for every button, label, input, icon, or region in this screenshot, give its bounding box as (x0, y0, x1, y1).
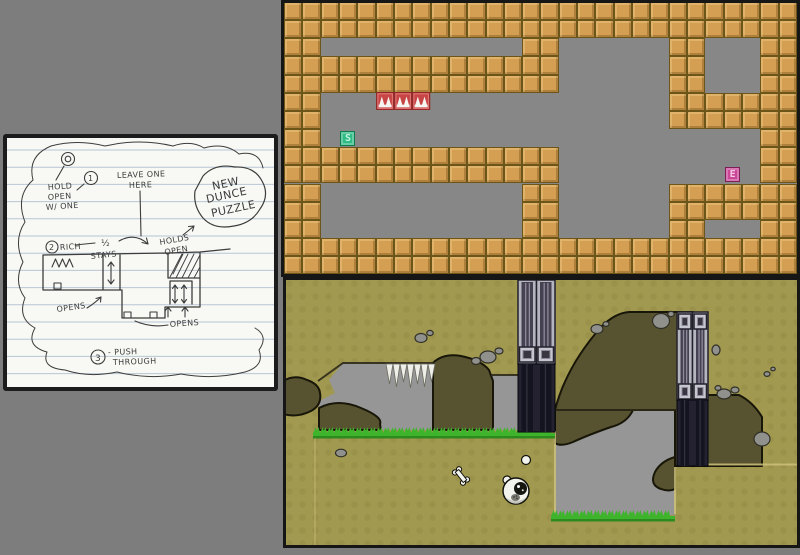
wall-tile (357, 147, 375, 165)
sketch-drawing: HOLDOPENW/ ONELEAVE ONEHERENEWDUNCEPUZZL… (7, 138, 274, 387)
wall-tile (559, 256, 577, 274)
wall-tile (669, 20, 687, 38)
wall-tile (431, 165, 449, 183)
wall-tile (522, 38, 540, 56)
rock (715, 386, 721, 391)
wall-tile (779, 129, 797, 147)
wall-tile (339, 165, 357, 183)
pencil-stroke (56, 166, 64, 180)
wall-tile (632, 256, 650, 274)
wall-tile (394, 256, 412, 274)
wall-tile (669, 2, 687, 20)
wall-tile (705, 202, 723, 220)
wall-tile (705, 20, 723, 38)
wall-tile (540, 165, 558, 183)
wall-tile (486, 165, 504, 183)
terrain-shape (283, 377, 320, 415)
tile-level-viewport[interactable]: SE (281, 0, 800, 277)
pencil-stroke (87, 297, 101, 308)
wall-tile (522, 2, 540, 20)
wall-tile (742, 202, 760, 220)
wall-tile (376, 147, 394, 165)
ball (522, 456, 531, 465)
rock (495, 348, 503, 354)
wall-tile (779, 111, 797, 129)
pencil-stroke (54, 283, 157, 318)
wall-tile (779, 147, 797, 165)
wall-tile (540, 184, 558, 202)
wall-tile (779, 202, 797, 220)
wall-tile (449, 256, 467, 274)
wall-tile (522, 184, 540, 202)
wall-tile (705, 111, 723, 129)
wall-tile (486, 75, 504, 93)
rock (764, 372, 770, 377)
wall-tile (742, 93, 760, 111)
wall-tile (724, 2, 742, 20)
sketch-label: OPEN (164, 244, 189, 257)
wall-tile (779, 93, 797, 111)
wall-tile (522, 238, 540, 256)
wall-tile (284, 220, 302, 238)
wall-tile (687, 20, 705, 38)
wall-tile (467, 20, 485, 38)
wall-tile (412, 56, 430, 74)
wall-tile (779, 56, 797, 74)
wall-tile (522, 56, 540, 74)
wall-tile (724, 20, 742, 38)
pencil-stroke (108, 262, 114, 284)
rock (480, 351, 496, 363)
rock (668, 311, 674, 316)
wall-tile (321, 147, 339, 165)
wall-tile (431, 56, 449, 74)
wall-tile (779, 256, 797, 274)
wall-tile (687, 38, 705, 56)
wall-tile (540, 56, 558, 74)
wall-tile (302, 202, 320, 220)
wall-tile (394, 147, 412, 165)
wall-tile (302, 238, 320, 256)
wall-tile (669, 111, 687, 129)
platformer-level-viewport[interactable] (283, 277, 800, 548)
wall-tile (540, 238, 558, 256)
wall-tile (321, 2, 339, 20)
wall-tile (302, 256, 320, 274)
wall-tile (302, 2, 320, 20)
spike-block (412, 92, 430, 110)
rock (603, 322, 609, 327)
wall-tile (540, 20, 558, 38)
start-marker: S (340, 131, 355, 146)
wall-tile (724, 202, 742, 220)
wall-tile (724, 184, 742, 202)
wall-tile (705, 184, 723, 202)
wall-tile (779, 220, 797, 238)
design-sketch-panel: HOLDOPENW/ ONELEAVE ONEHERENEWDUNCEPUZZL… (3, 134, 278, 391)
sketch-label: OPENS (56, 301, 86, 314)
rock (653, 314, 670, 329)
wall-tile (394, 75, 412, 93)
wall-tile (595, 238, 613, 256)
wall-tile (760, 165, 778, 183)
wall-tile (339, 75, 357, 93)
metal-pillar (518, 280, 555, 432)
wall-tile (779, 184, 797, 202)
spike-block (394, 92, 412, 110)
wall-tile (467, 2, 485, 20)
wall-tile (284, 2, 302, 20)
wall-tile (357, 165, 375, 183)
wall-tile (376, 2, 394, 20)
wall-tile (339, 56, 357, 74)
wall-tile (522, 147, 540, 165)
wall-tile (321, 56, 339, 74)
wall-tile (504, 2, 522, 20)
sketch-label: OPEN (48, 191, 72, 202)
wall-tile (669, 56, 687, 74)
wall-tile (760, 111, 778, 129)
wall-tile (779, 38, 797, 56)
sketch-label: RICH (60, 242, 82, 252)
wall-tile (760, 38, 778, 56)
wall-tile (522, 75, 540, 93)
wall-tile (779, 238, 797, 256)
wall-tile (412, 147, 430, 165)
wall-tile (669, 238, 687, 256)
design-workspace: HOLDOPENW/ ONELEAVE ONEHERENEWDUNCEPUZZL… (0, 0, 800, 555)
wall-tile (760, 56, 778, 74)
wall-tile (559, 2, 577, 20)
rock (427, 330, 433, 335)
wall-tile (705, 238, 723, 256)
wall-tile (376, 56, 394, 74)
wall-tile (540, 256, 558, 274)
wall-tile (760, 220, 778, 238)
metal-pillar (677, 312, 708, 466)
pencil-stroke (170, 254, 200, 278)
wall-tile (504, 75, 522, 93)
wall-tile (669, 202, 687, 220)
wall-tile (302, 56, 320, 74)
wall-tile (302, 220, 320, 238)
pencil-stroke (204, 146, 263, 168)
pencil-stroke (140, 191, 141, 236)
wall-tile (431, 75, 449, 93)
wall-tile (742, 20, 760, 38)
wall-tile (412, 238, 430, 256)
sketch-label: ½ (101, 239, 110, 249)
wall-tile (760, 20, 778, 38)
rock (591, 325, 603, 334)
sketch-label: STAYS (90, 249, 117, 261)
wall-tile (449, 75, 467, 93)
wall-tile (339, 2, 357, 20)
pencil-circle (65, 156, 71, 162)
wall-tile (760, 2, 778, 20)
rock (472, 358, 481, 365)
wall-tile (302, 147, 320, 165)
wall-tile (357, 256, 375, 274)
wall-tile (284, 129, 302, 147)
wall-tile (724, 256, 742, 274)
wall-tile (321, 165, 339, 183)
wall-tile (760, 184, 778, 202)
rock (731, 387, 739, 393)
wall-tile (284, 165, 302, 183)
wall-tile (577, 256, 595, 274)
wall-tile (412, 75, 430, 93)
wall-tile (669, 220, 687, 238)
wall-tile (614, 2, 632, 20)
wall-tile (522, 202, 540, 220)
bone-icon (451, 466, 470, 487)
wall-tile (559, 238, 577, 256)
wall-tile (376, 238, 394, 256)
wall-tile (284, 38, 302, 56)
wall-tile (467, 147, 485, 165)
wall-tile (467, 56, 485, 74)
wall-tile (394, 165, 412, 183)
wall-tile (577, 238, 595, 256)
wall-tile (540, 38, 558, 56)
wall-tile (614, 256, 632, 274)
wall-tile (302, 20, 320, 38)
wall-tile (559, 20, 577, 38)
wall-tile (614, 238, 632, 256)
wall-tile (449, 20, 467, 38)
wall-tile (321, 256, 339, 274)
wall-tile (650, 256, 668, 274)
wall-tile (412, 256, 430, 274)
wall-tile (376, 20, 394, 38)
wall-tile (632, 20, 650, 38)
wall-tile (760, 256, 778, 274)
wall-tile (540, 2, 558, 20)
wall-tile (760, 129, 778, 147)
wall-tile (669, 75, 687, 93)
wall-tile (760, 75, 778, 93)
wall-tile (687, 238, 705, 256)
wall-tile (431, 20, 449, 38)
wall-tile (376, 165, 394, 183)
wall-tile (284, 238, 302, 256)
wall-tile (595, 256, 613, 274)
pencil-circle (62, 153, 75, 166)
wall-tile (486, 147, 504, 165)
wall-tile (687, 56, 705, 74)
wall-tile (779, 165, 797, 183)
wall-tile (760, 238, 778, 256)
wall-tile (779, 2, 797, 20)
wall-tile (504, 256, 522, 274)
rock (712, 345, 720, 355)
wall-tile (302, 75, 320, 93)
wall-tile (486, 20, 504, 38)
wall-tile (486, 2, 504, 20)
wall-tile (431, 256, 449, 274)
wall-tile (284, 184, 302, 202)
wall-tile (669, 184, 687, 202)
wall-tile (669, 38, 687, 56)
wall-tile (284, 202, 302, 220)
wall-tile (302, 111, 320, 129)
sketch-label: HERE (129, 180, 153, 190)
wall-tile (412, 165, 430, 183)
wall-tile (412, 20, 430, 38)
wall-tile (504, 20, 522, 38)
sketch-label: - PUSH (108, 347, 138, 357)
rock (336, 449, 347, 457)
wall-tile (669, 93, 687, 111)
wall-tile (742, 2, 760, 20)
wall-tile (540, 147, 558, 165)
wall-tile (742, 256, 760, 274)
wall-tile (302, 38, 320, 56)
terrain-shape (433, 355, 493, 430)
wall-tile (321, 75, 339, 93)
wall-tile (705, 93, 723, 111)
wall-tile (339, 256, 357, 274)
wall-tile (687, 184, 705, 202)
wall-tile (284, 93, 302, 111)
wall-tile (760, 202, 778, 220)
sketch-label: THROUGH (112, 356, 157, 367)
wall-tile (486, 256, 504, 274)
wall-tile (357, 2, 375, 20)
wall-tile (504, 56, 522, 74)
wall-tile (687, 256, 705, 274)
pencil-stroke (51, 142, 204, 148)
wall-tile (687, 2, 705, 20)
rock (771, 367, 775, 371)
wall-tile (742, 238, 760, 256)
wall-tile (687, 220, 705, 238)
wall-tile (669, 256, 687, 274)
wall-tile (540, 75, 558, 93)
pencil-stroke (165, 307, 188, 317)
player-character (503, 476, 529, 504)
sketch-canvas: HOLDOPENW/ ONELEAVE ONEHERENEWDUNCEPUZZL… (7, 138, 274, 387)
wall-tile (687, 111, 705, 129)
wall-tile (522, 20, 540, 38)
wall-tile (577, 2, 595, 20)
wall-tile (522, 165, 540, 183)
sketch-label: HOLD (48, 181, 73, 192)
wall-tile (779, 75, 797, 93)
spike-block (376, 92, 394, 110)
platformer-layer (283, 277, 800, 548)
exit-marker: E (725, 167, 740, 182)
wall-tile (742, 184, 760, 202)
wall-tile (650, 238, 668, 256)
sketch-label: 1 (88, 174, 94, 183)
wall-tile (394, 2, 412, 20)
rock (754, 432, 770, 446)
wall-tile (705, 256, 723, 274)
pencil-stroke (119, 237, 148, 244)
wall-tile (742, 111, 760, 129)
wall-tile (577, 20, 595, 38)
wall-tile (339, 147, 357, 165)
wall-tile (632, 238, 650, 256)
wall-tile (449, 2, 467, 20)
rock (415, 334, 427, 343)
wall-tile (321, 20, 339, 38)
wall-tile (779, 20, 797, 38)
wall-tile (302, 184, 320, 202)
sketch-label: W/ ONE (46, 201, 79, 212)
platformer-canvas (283, 277, 800, 548)
wall-tile (284, 111, 302, 129)
wall-tile (394, 238, 412, 256)
sketch-label: OPENS (170, 318, 200, 329)
wall-tile (504, 165, 522, 183)
sketch-label: 3 (95, 354, 101, 364)
wall-tile (357, 56, 375, 74)
wall-tile (449, 56, 467, 74)
wall-tile (321, 238, 339, 256)
wall-tile (486, 56, 504, 74)
wall-tile (449, 238, 467, 256)
wall-tile (284, 56, 302, 74)
wall-tile (431, 2, 449, 20)
wall-tile (467, 165, 485, 183)
wall-tile (339, 238, 357, 256)
wall-tile (302, 165, 320, 183)
sketch-label: 2 (49, 243, 55, 252)
wall-tile (284, 147, 302, 165)
wall-tile (687, 93, 705, 111)
wall-tile (302, 93, 320, 111)
wall-tile (449, 147, 467, 165)
wall-tile (431, 238, 449, 256)
wall-tile (376, 256, 394, 274)
wall-tile (449, 165, 467, 183)
pencil-stroke (52, 259, 73, 267)
wall-tile (540, 220, 558, 238)
wall-tile (760, 93, 778, 111)
wall-tile (614, 20, 632, 38)
wall-tile (705, 2, 723, 20)
wall-tile (724, 238, 742, 256)
wall-tile (687, 75, 705, 93)
wall-tile (284, 20, 302, 38)
wall-tile (431, 147, 449, 165)
wall-tile (504, 147, 522, 165)
wall-tile (650, 20, 668, 38)
wall-tile (302, 129, 320, 147)
wall-tile (504, 238, 522, 256)
wall-tile (357, 75, 375, 93)
wall-tile (467, 75, 485, 93)
wall-tile (339, 20, 357, 38)
wall-tile (540, 202, 558, 220)
wall-tile (376, 75, 394, 93)
wall-tile (284, 256, 302, 274)
wall-tile (394, 20, 412, 38)
wall-tile (522, 220, 540, 238)
wall-tile (522, 256, 540, 274)
wall-tile (394, 56, 412, 74)
wall-tile (632, 2, 650, 20)
wall-tile (687, 202, 705, 220)
wall-tile (412, 2, 430, 20)
wall-tile (650, 2, 668, 20)
wall-tile (357, 20, 375, 38)
wall-tile (724, 93, 742, 111)
wall-tile (284, 75, 302, 93)
